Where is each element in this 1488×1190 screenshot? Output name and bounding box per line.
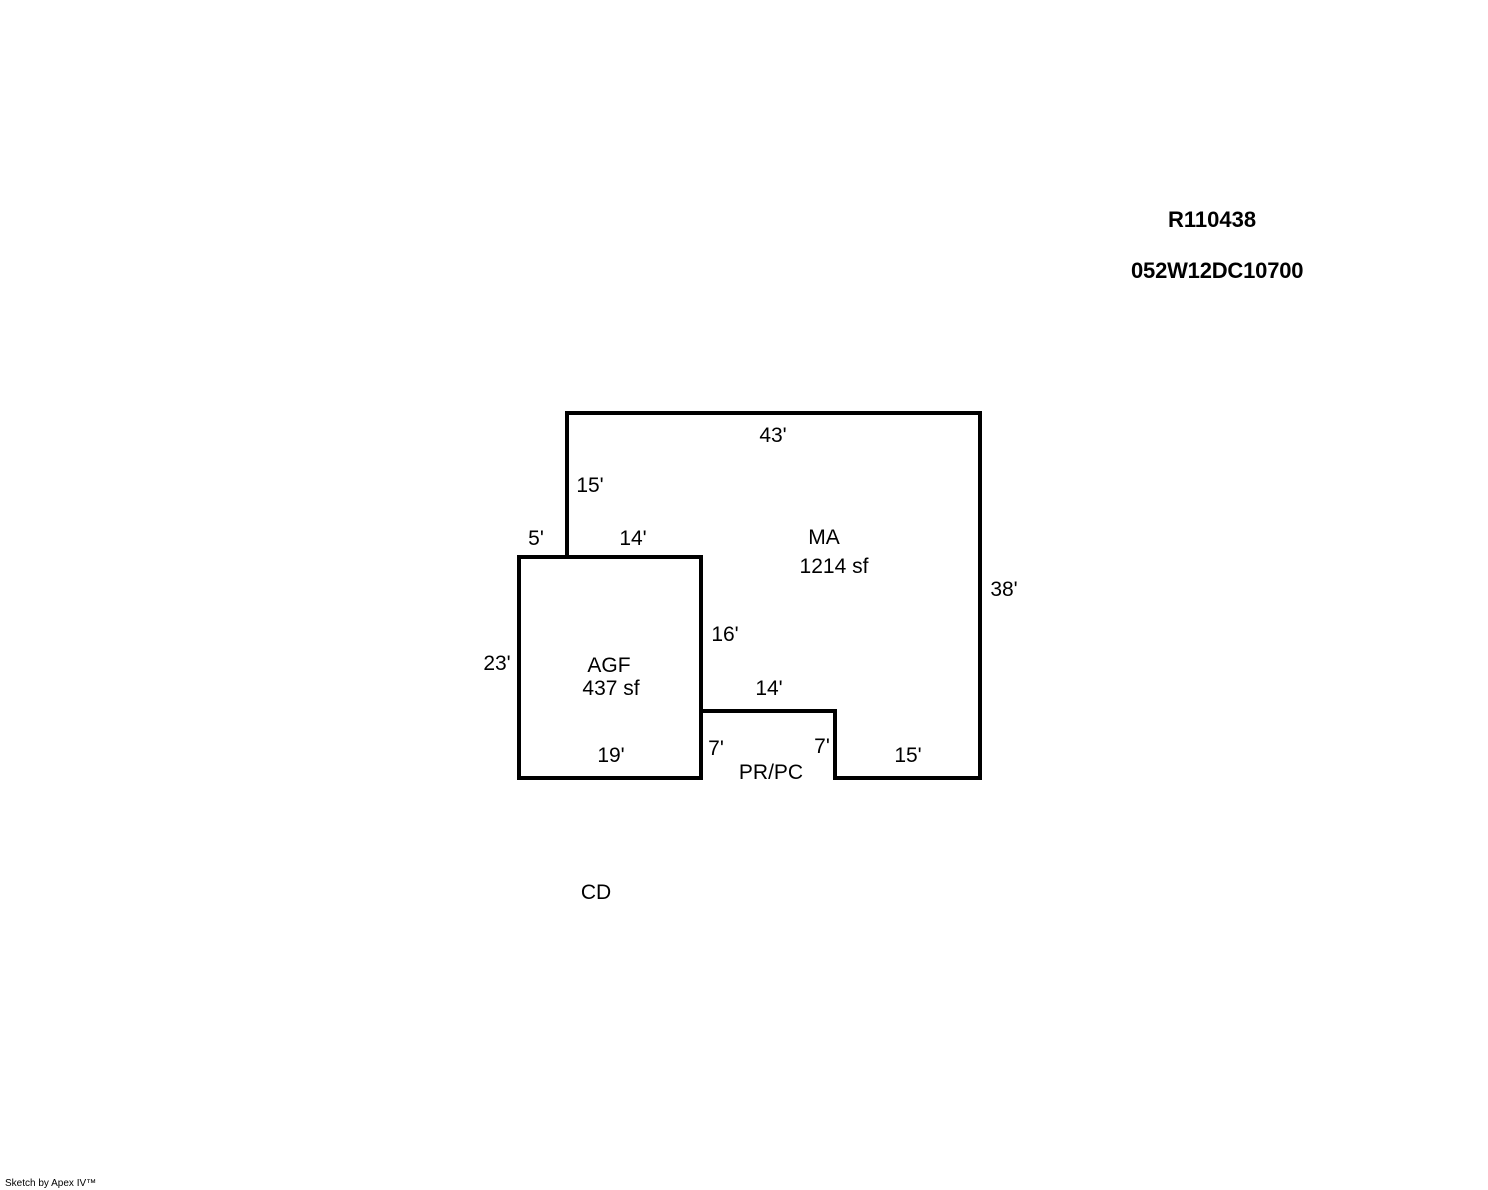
svg-text:16': 16' bbox=[711, 623, 738, 646]
svg-text:38': 38' bbox=[990, 578, 1017, 601]
svg-text:Sketch by Apex IV™: Sketch by Apex IV™ bbox=[5, 1178, 96, 1189]
svg-text:7': 7' bbox=[708, 737, 724, 760]
svg-text:23': 23' bbox=[483, 652, 510, 675]
svg-text:14': 14' bbox=[619, 527, 646, 550]
svg-text:7': 7' bbox=[814, 735, 830, 758]
svg-text:15': 15' bbox=[576, 474, 603, 497]
svg-text:437 sf: 437 sf bbox=[582, 677, 639, 700]
svg-text:1214 sf: 1214 sf bbox=[800, 555, 869, 578]
svg-text:15': 15' bbox=[894, 744, 921, 767]
svg-text:R110438: R110438 bbox=[1168, 207, 1256, 232]
svg-text:5': 5' bbox=[528, 527, 544, 550]
svg-text:MA: MA bbox=[808, 526, 840, 549]
svg-text:PR/PC: PR/PC bbox=[739, 761, 803, 784]
svg-text:052W12DC10700: 052W12DC10700 bbox=[1131, 258, 1303, 283]
svg-text:CD: CD bbox=[581, 881, 611, 904]
svg-text:19': 19' bbox=[597, 744, 624, 767]
svg-text:43': 43' bbox=[759, 424, 786, 447]
svg-text:14': 14' bbox=[755, 677, 782, 700]
svg-text:AGF: AGF bbox=[587, 654, 630, 677]
